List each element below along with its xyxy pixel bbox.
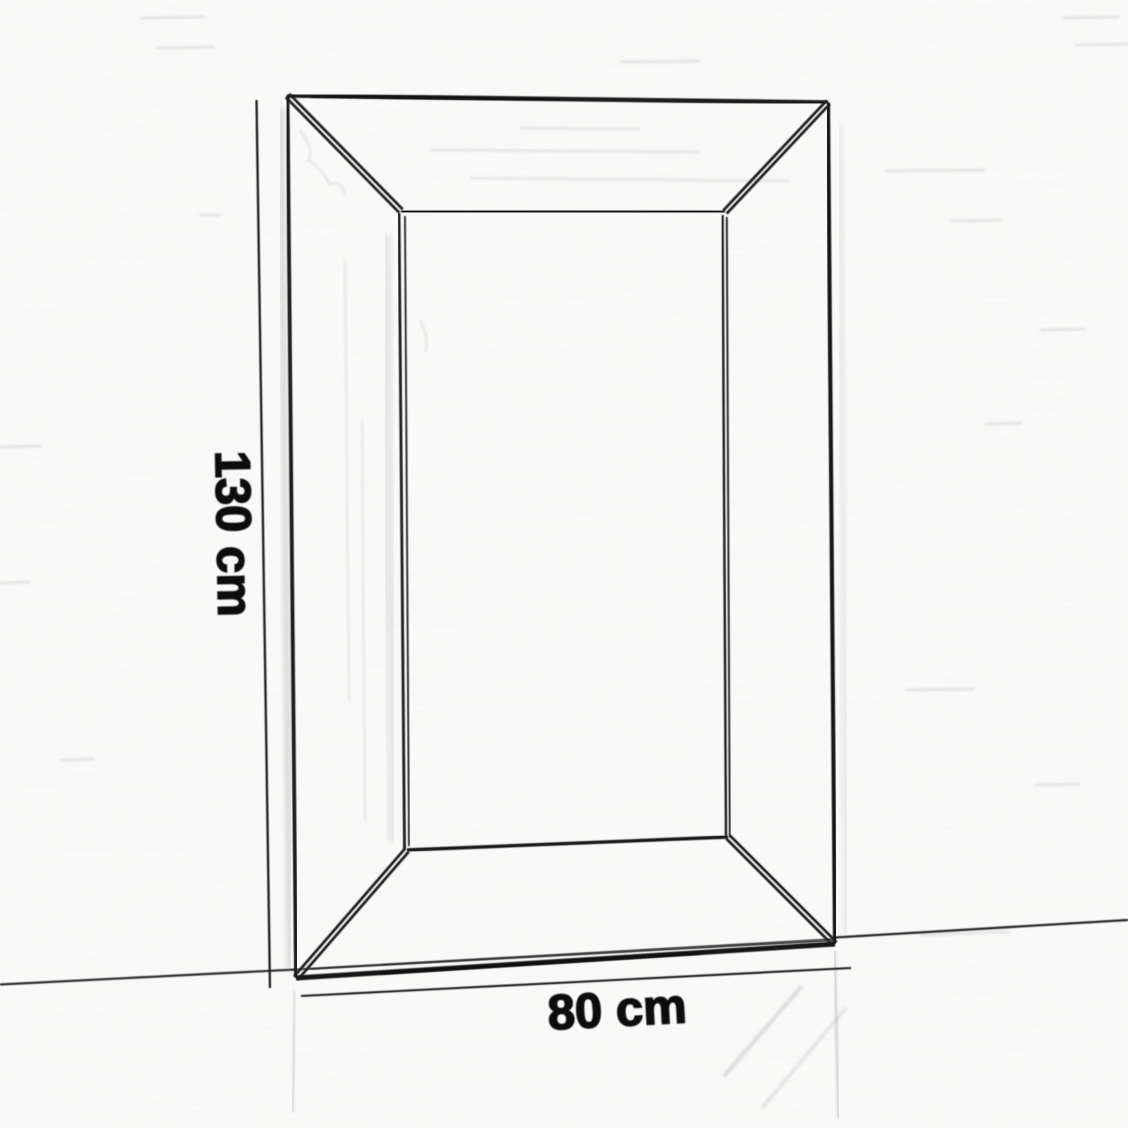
svg-text:130 cm: 130 cm — [205, 450, 262, 617]
svg-text:80 cm: 80 cm — [546, 979, 688, 1040]
